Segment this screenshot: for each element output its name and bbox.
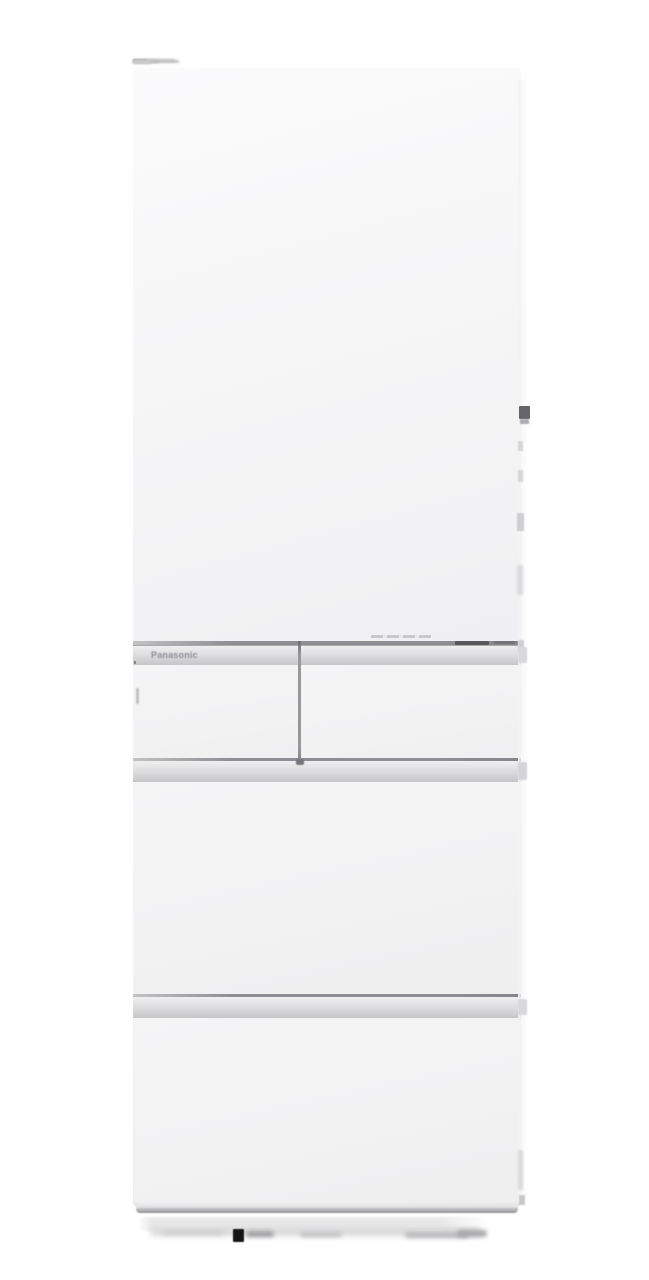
door-seal-mark [518,441,523,451]
door-hinge-shadow [520,419,529,424]
door-seal-mark [518,470,523,482]
door-seal-mark [518,1150,523,1190]
door-seal-mark [519,1195,525,1205]
bottom-edge-line [136,1207,518,1213]
shadow-smudge [300,1232,342,1237]
handle-side-wrap [518,647,527,663]
divider-notch [296,759,304,765]
handle-side-wrap [518,762,527,780]
bottom-drawer-front [133,1018,521,1207]
hinge-mark [494,641,515,644]
middle-drawer-front [133,782,521,994]
brand-logo: Panasonic [151,650,198,660]
middle-left-door: Panasonic [133,645,298,758]
upper-door [133,68,521,641]
recessed-handle [133,761,521,783]
shadow-smudge [457,1230,487,1237]
handle-side-wrap [518,999,527,1015]
refrigerator: Panasonic [133,63,521,1216]
door-seal-mark [517,513,524,531]
door-edge-mark [134,661,136,664]
door-hinge [519,406,530,419]
vent-slots [371,635,431,638]
recessed-handle: Panasonic [133,645,298,665]
middle-door-row: Panasonic [133,645,521,758]
recessed-handle [133,997,521,1019]
door-face [301,665,521,758]
door-seal-mark [517,565,523,595]
caster-foot [233,1229,244,1242]
top-edge-smudge [133,61,151,64]
shadow-smudge [163,1230,223,1235]
door-edge-mark [136,688,139,704]
door-face [133,665,298,758]
photo-background: Panasonic [0,0,649,1280]
recessed-handle [301,645,521,665]
shadow-smudge [246,1231,274,1237]
middle-right-door [301,645,521,758]
